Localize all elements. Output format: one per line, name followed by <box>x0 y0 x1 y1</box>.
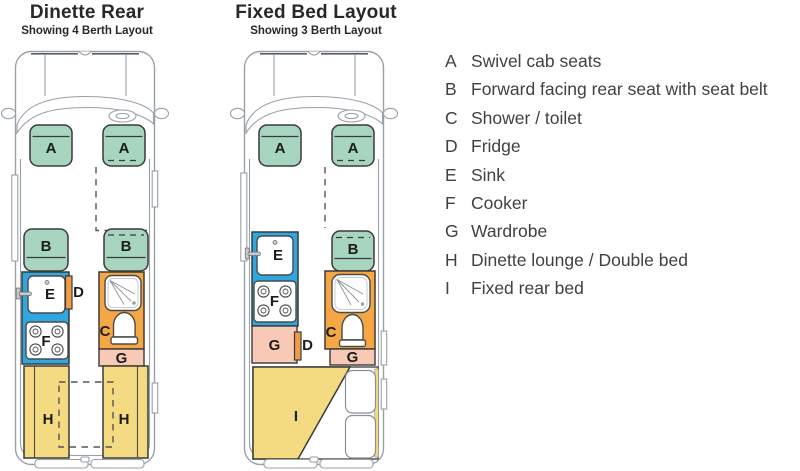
legend-key: H <box>445 246 471 274</box>
side-door-rail-left <box>12 175 18 261</box>
legend-text: Fixed rear bed <box>471 274 795 302</box>
burner-center-icon <box>55 329 60 334</box>
legend-key: E <box>445 161 471 189</box>
legend-key: C <box>445 104 471 132</box>
wardrobe-right-label: G <box>347 349 359 366</box>
fridge-strip <box>295 332 302 360</box>
bed-cushion-bottom <box>346 416 376 459</box>
burner-center-icon <box>33 329 38 334</box>
mirror-left-icon <box>2 108 16 118</box>
wardrobe-left-label: G <box>269 337 281 354</box>
drain-icon <box>45 281 49 285</box>
layout-title: Fixed Bed Layout <box>230 2 402 24</box>
mirror-right-icon <box>384 108 398 118</box>
tap-spout <box>248 252 261 256</box>
burner-center-icon <box>33 347 38 352</box>
cab-seat-right: A <box>332 125 374 166</box>
shower-label: C <box>326 324 337 341</box>
steering-wheel-icon <box>338 110 365 122</box>
shower-toilet-room: C <box>325 271 375 349</box>
toilet-icon <box>114 312 136 337</box>
sink-label: E <box>273 247 283 264</box>
seat-label: A <box>275 140 286 157</box>
cab-seat-left: A <box>30 125 72 166</box>
layout-title: Dinette Rear <box>1 2 173 24</box>
dinette-bench-left: H <box>24 366 69 458</box>
fridge-label: D <box>302 337 313 354</box>
rear-door-right <box>91 460 144 469</box>
legend-key: I <box>445 274 471 302</box>
seat-label: B <box>41 238 52 255</box>
legend-text: Wardrobe <box>471 217 795 245</box>
burner-center-icon <box>55 347 60 352</box>
shower-drain-icon <box>361 302 365 306</box>
kitchen-unit: E F <box>245 232 298 326</box>
legend-item: FCooker <box>445 189 795 217</box>
side-rail-right-upper <box>152 171 158 207</box>
toilet-base <box>340 340 366 347</box>
cooker-label: F <box>41 333 50 350</box>
bench-label: H <box>43 411 54 428</box>
fixed-bed: I <box>253 367 378 459</box>
burner-center-icon <box>283 308 288 313</box>
legend-item: BForward facing rear seat with seat belt <box>445 75 795 103</box>
seat-label: A <box>46 140 57 157</box>
mirror-right-icon <box>155 108 169 118</box>
dinette-bench-right: H <box>103 366 148 458</box>
fridge-label: D <box>73 284 84 301</box>
rear-door-left <box>264 460 317 469</box>
bench-label: H <box>119 411 130 428</box>
bed-label: I <box>294 408 298 425</box>
wardrobe-label: G <box>116 350 128 367</box>
legend-key: D <box>445 132 471 160</box>
side-rail-right-lower <box>152 383 158 413</box>
toilet-icon <box>342 315 363 341</box>
rear-door-right <box>320 460 373 469</box>
shower-toilet-room: C <box>99 272 144 349</box>
layout-subtitle: Showing 4 Berth Layout <box>1 24 173 38</box>
legend-key: F <box>445 189 471 217</box>
seat-label: A <box>348 140 359 157</box>
kitchen-unit: E F <box>16 272 69 364</box>
toilet-base <box>111 337 138 344</box>
legend-item: ASwivel cab seats <box>445 47 795 75</box>
burner-center-icon <box>261 289 266 294</box>
seat-label: A <box>119 140 130 157</box>
burner-center-icon <box>261 308 266 313</box>
side-rail-right-lower <box>381 379 387 409</box>
rear-door-latch <box>310 457 318 462</box>
rear-door-left <box>35 460 88 469</box>
seat-label: B <box>348 241 359 258</box>
legend-item: DFridge <box>445 132 795 160</box>
legend-item: ESink <box>445 161 795 189</box>
rear-seat-right: B <box>104 229 148 271</box>
cab-seat-right: A <box>103 125 145 166</box>
layout-dinette-rear: Dinette Rear Showing 4 Berth Layout A <box>1 2 173 470</box>
van-floorplan-dinette: A A B B <box>1 47 173 470</box>
legend-item: HDinette lounge / Double bed <box>445 246 795 274</box>
rear-seat-left: B <box>24 229 68 271</box>
bed-cushion-top <box>346 371 376 414</box>
shower-label: C <box>100 323 111 340</box>
legend-text: Swivel cab seats <box>471 47 795 75</box>
legend: ASwivel cab seats BForward facing rear s… <box>445 47 795 303</box>
steering-wheel-icon <box>109 110 136 122</box>
legend-key: A <box>445 47 471 75</box>
layout-fixed-bed: Fixed Bed Layout Showing 3 Berth Layout … <box>230 2 402 470</box>
sink-label: E <box>45 286 55 303</box>
van-floorplan-fixed-bed: A A B <box>230 47 402 470</box>
rear-door-latch <box>81 457 89 462</box>
rear-seat: B <box>332 231 374 271</box>
legend-text: Fridge <box>471 132 795 160</box>
legend-key: G <box>445 217 471 245</box>
layout-subtitle: Showing 3 Berth Layout <box>230 24 402 38</box>
legend-text: Shower / toilet <box>471 104 795 132</box>
mirror-left-icon <box>231 108 245 118</box>
diagram-canvas: Dinette Rear Showing 4 Berth Layout A <box>0 0 800 471</box>
legend-text: Dinette lounge / Double bed <box>471 246 795 274</box>
drain-icon <box>273 241 277 245</box>
legend-text: Forward facing rear seat with seat belt <box>471 75 795 103</box>
side-rail-right-upper <box>381 331 387 365</box>
legend-text: Cooker <box>471 189 795 217</box>
legend-text: Sink <box>471 161 795 189</box>
legend-item: IFixed rear bed <box>445 274 795 302</box>
cab-seat-left: A <box>259 125 301 166</box>
legend-item: CShower / toilet <box>445 104 795 132</box>
tap-spout <box>19 292 32 296</box>
burner-center-icon <box>283 289 288 294</box>
legend-item: GWardrobe <box>445 217 795 245</box>
legend-key: B <box>445 75 471 103</box>
cooker-label: F <box>270 293 279 310</box>
shower-drain-icon <box>132 301 136 305</box>
seat-label: B <box>121 238 132 255</box>
fridge-strip <box>66 276 73 309</box>
